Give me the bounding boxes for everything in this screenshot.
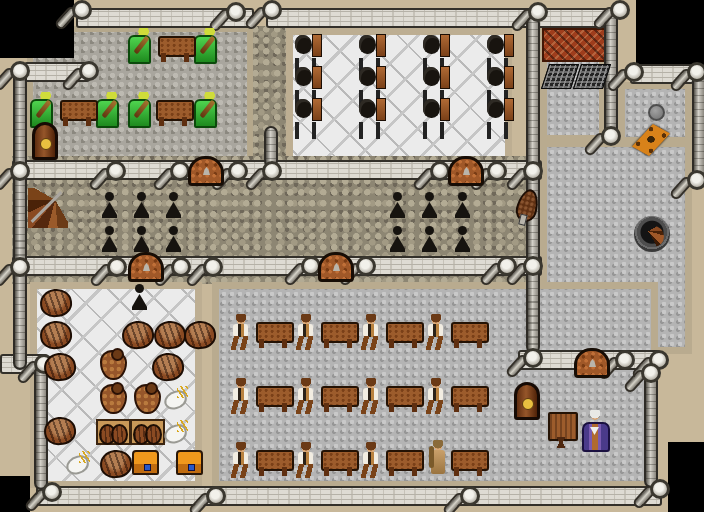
door[interactable] [318, 252, 354, 282]
wall-pillar-knob [203, 257, 223, 277]
wall-pillar-knob [430, 161, 450, 181]
wall-pillar [608, 0, 632, 22]
table [321, 322, 355, 348]
wall-pillar-knob [624, 62, 644, 82]
musician[interactable] [194, 92, 220, 128]
wall-pillar-knob [206, 486, 226, 506]
wall-pillar [354, 254, 378, 278]
wall-segment [526, 16, 540, 354]
wall-pillar-knob [687, 62, 704, 82]
wall-pillar-knob [79, 61, 99, 81]
candle [102, 192, 117, 218]
loom [358, 64, 388, 94]
fowl [164, 420, 188, 440]
wall-pillar-knob [228, 161, 248, 181]
wall-pillar [685, 60, 704, 84]
wall-pillar-knob [523, 161, 543, 181]
door[interactable] [448, 156, 484, 186]
wall-segment [692, 70, 704, 182]
table [386, 322, 420, 348]
wall-pillar [40, 480, 64, 504]
wall-pillar [526, 0, 550, 24]
wall-pillar-knob [262, 161, 282, 181]
peasant[interactable] [295, 442, 317, 478]
candle [455, 192, 470, 218]
desk [546, 412, 576, 448]
wall-pillar-knob [650, 479, 670, 499]
wall-pillar [599, 124, 623, 148]
loom [294, 64, 324, 94]
candle [166, 192, 181, 218]
wall-segment [36, 486, 662, 506]
wall-pillar-knob [10, 161, 30, 181]
wall-pillar [77, 59, 101, 83]
peasant[interactable] [295, 314, 317, 350]
wall-pillar [613, 348, 637, 372]
candle [102, 226, 117, 252]
loom [358, 96, 388, 126]
clock [32, 122, 58, 160]
candle [390, 192, 405, 218]
candle [455, 226, 470, 252]
wall-pillar [105, 255, 129, 279]
wall-pillar [70, 0, 94, 22]
loom [294, 32, 324, 62]
candle [422, 226, 437, 252]
door[interactable] [128, 252, 164, 282]
wall-pillar [8, 159, 32, 183]
wall-pillar [485, 159, 509, 183]
floor-brick [542, 28, 608, 62]
fowl [164, 386, 188, 406]
wall-pillar-knob [10, 257, 30, 277]
musician[interactable] [128, 92, 154, 128]
wall-pillar [204, 484, 228, 508]
table [60, 100, 94, 126]
candle [134, 226, 149, 252]
table [386, 450, 420, 476]
wall-pillar-knob [601, 126, 621, 146]
game-map [0, 0, 704, 512]
candle [390, 226, 405, 252]
loom [422, 96, 452, 126]
table [451, 386, 485, 412]
wall-pillar-knob [106, 161, 126, 181]
wall-pillar-knob [523, 256, 543, 276]
loom [422, 32, 452, 62]
table [321, 386, 355, 412]
peasant[interactable] [230, 378, 252, 414]
candle [132, 284, 147, 310]
chest[interactable] [176, 450, 203, 475]
loom [358, 32, 388, 62]
wall-pillar [521, 254, 545, 278]
wall-pillar-knob [170, 161, 190, 181]
trapdoor[interactable] [632, 124, 670, 156]
wizard[interactable] [581, 410, 608, 450]
peasant[interactable] [425, 314, 447, 350]
peasant[interactable] [230, 314, 252, 350]
wall-pillar [521, 346, 545, 370]
wall-pillar [8, 59, 32, 83]
loom [422, 64, 452, 94]
wall-pillar-knob [460, 486, 480, 506]
wall-pillar-knob [610, 0, 630, 20]
wall-pillar [260, 0, 284, 22]
table [386, 386, 420, 412]
peasant[interactable] [425, 378, 447, 414]
peasant[interactable] [230, 442, 252, 478]
loom [294, 96, 324, 126]
loom [486, 32, 516, 62]
clock [514, 382, 540, 420]
wall-segment [13, 62, 27, 370]
wall-pillar-knob [226, 2, 246, 22]
stairs-wood[interactable] [28, 188, 68, 228]
wall-pillar-knob [528, 2, 548, 22]
wall-pillar [648, 477, 672, 501]
wall-pillar-knob [262, 0, 282, 20]
door[interactable] [188, 156, 224, 186]
wall-pillar [8, 255, 32, 279]
wall-pillar [639, 361, 663, 385]
loom [486, 96, 516, 126]
peasant[interactable] [360, 314, 382, 350]
unexplored-void [668, 442, 704, 512]
musician[interactable] [128, 28, 154, 64]
table [451, 322, 485, 348]
wall-pillar [458, 484, 482, 508]
table [256, 386, 290, 412]
chest[interactable] [132, 450, 159, 475]
wall-pillar-knob [72, 0, 92, 20]
musician[interactable] [194, 28, 220, 64]
musician[interactable] [96, 92, 122, 128]
wall-segment [644, 374, 658, 488]
table [156, 100, 190, 126]
wall-pillar-knob [687, 170, 704, 190]
candle [422, 192, 437, 218]
crate [130, 419, 165, 445]
wall-pillar-knob [171, 257, 191, 277]
hole[interactable] [648, 104, 665, 121]
wall-pillar [104, 159, 128, 183]
wall-pillar-knob [487, 161, 507, 181]
woman[interactable] [427, 440, 449, 476]
wall-pillar [622, 60, 646, 84]
wall-pillar [201, 255, 225, 279]
unexplored-void [636, 0, 704, 66]
wall-pillar [685, 168, 704, 192]
wall-pillar [521, 159, 545, 183]
candle [134, 192, 149, 218]
peasant[interactable] [360, 442, 382, 478]
wall-segment [12, 256, 542, 276]
table [256, 322, 290, 348]
wall-pillar-knob [523, 348, 543, 368]
table [321, 450, 355, 476]
table [451, 450, 485, 476]
candle [166, 226, 181, 252]
loom [486, 64, 516, 94]
peasant[interactable] [295, 378, 317, 414]
wall-pillar [260, 159, 284, 183]
wall-pillar-knob [10, 61, 30, 81]
wall-pillar-knob [615, 350, 635, 370]
table [158, 36, 192, 62]
wall-pillar [224, 0, 248, 24]
wall-segment [266, 8, 614, 28]
wall-pillar [226, 159, 250, 183]
stairs-dark[interactable] [634, 216, 670, 252]
wall-pillar-knob [42, 482, 62, 502]
peasant[interactable] [360, 378, 382, 414]
wall-pillar-knob [107, 257, 127, 277]
wall-pillar-knob [641, 363, 661, 383]
wall-pillar-knob [356, 256, 376, 276]
table [256, 450, 290, 476]
crate [96, 419, 131, 445]
fowl [66, 451, 90, 471]
door[interactable] [574, 348, 610, 378]
